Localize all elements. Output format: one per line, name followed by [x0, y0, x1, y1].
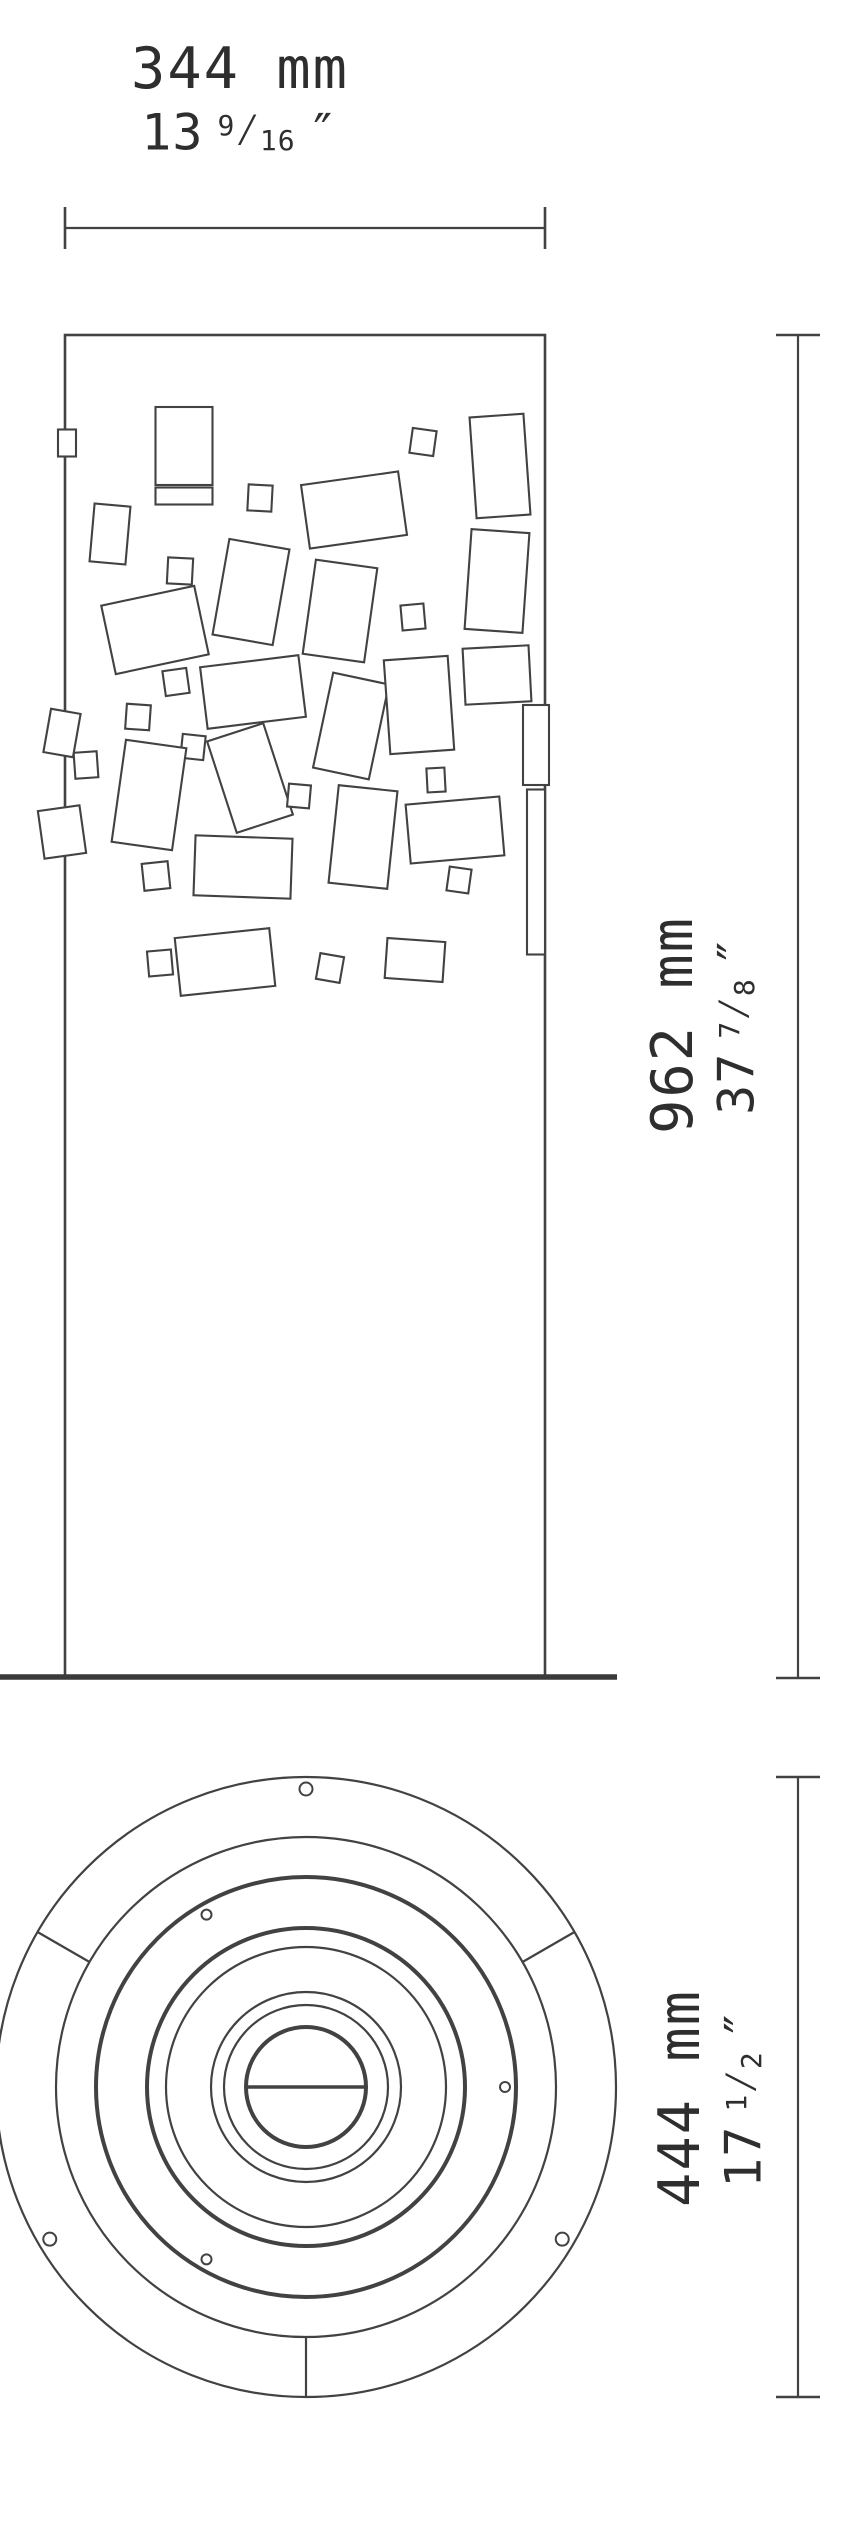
pattern-cutout-rect: [463, 645, 532, 704]
pattern-cutout-rect: [58, 430, 76, 457]
pattern-cutout-rect: [125, 704, 151, 731]
pattern-cutout-rect: [38, 805, 86, 858]
technical-drawing-page: 344 mm 139⁄16″ 962 mm 377⁄8″ 444 mm 171⁄…: [0, 0, 860, 2524]
pattern-cutout-rect: [43, 709, 80, 758]
pattern-cutout-rect: [90, 504, 131, 565]
pattern-cutout-rect: [156, 407, 213, 485]
pattern-cutout-rect: [156, 488, 213, 505]
mounting-hole: [202, 2254, 212, 2264]
ring-segment-line: [38, 1932, 90, 1962]
pattern-cutout-rect: [384, 656, 454, 754]
pattern-cutout-rect: [200, 655, 306, 729]
mounting-hole: [556, 2233, 569, 2246]
pattern-cutout-rect: [385, 938, 446, 982]
pattern-cutout-rect: [406, 797, 505, 864]
width-inch-text: 139⁄16″: [0, 104, 480, 161]
pattern-cutout-rect: [301, 471, 407, 548]
pattern-cutout-rect: [465, 529, 530, 633]
pattern-cutout-rect: [409, 428, 436, 456]
height-inch-text: 377⁄8″: [708, 935, 765, 1115]
pattern-cutout-rect: [527, 790, 545, 955]
pattern-cutout-rect: [74, 751, 99, 779]
pattern-cutout-rect: [142, 861, 171, 891]
mounting-hole: [202, 1910, 212, 1920]
diameter-mm-text: 444 mm: [649, 1989, 713, 2207]
pattern-cutout-rect: [193, 835, 292, 898]
pattern-cutout-rect: [523, 705, 549, 785]
pattern-cutout-rect: [147, 950, 173, 977]
mounting-hole: [43, 2233, 56, 2246]
height-mm-text: 962 mm: [642, 916, 706, 1134]
pattern-cutout-rect: [470, 414, 531, 519]
height-dimension-label: 962 mm 377⁄8″: [633, 725, 773, 1325]
pattern-cutout-rect: [329, 785, 398, 889]
pattern-cutout-rect: [446, 867, 471, 894]
width-mm-text: 344 mm: [0, 38, 480, 102]
pattern-cutout-rect: [162, 668, 189, 696]
ring-segment-line: [523, 1932, 575, 1962]
diameter-inch-text: 171⁄2″: [715, 2008, 772, 2188]
pattern-cutout-rect: [400, 604, 425, 631]
pattern-cutout-rect: [112, 740, 187, 850]
mounting-hole: [500, 2082, 510, 2092]
pattern-cutout-rect: [167, 557, 193, 584]
pattern-cutout-rect: [175, 928, 276, 996]
pattern-cutout-rect: [247, 484, 272, 511]
pattern-cutout-rect: [303, 560, 378, 663]
mounting-hole: [300, 1783, 313, 1796]
width-dimension-label: 344 mm 139⁄16″: [0, 38, 480, 160]
pattern-cutout-rect: [426, 768, 445, 793]
pattern-cutout-rect: [287, 784, 311, 809]
diameter-dimension-label: 444 mm 171⁄2″: [640, 1838, 780, 2358]
pattern-cutout-rect: [316, 953, 344, 983]
